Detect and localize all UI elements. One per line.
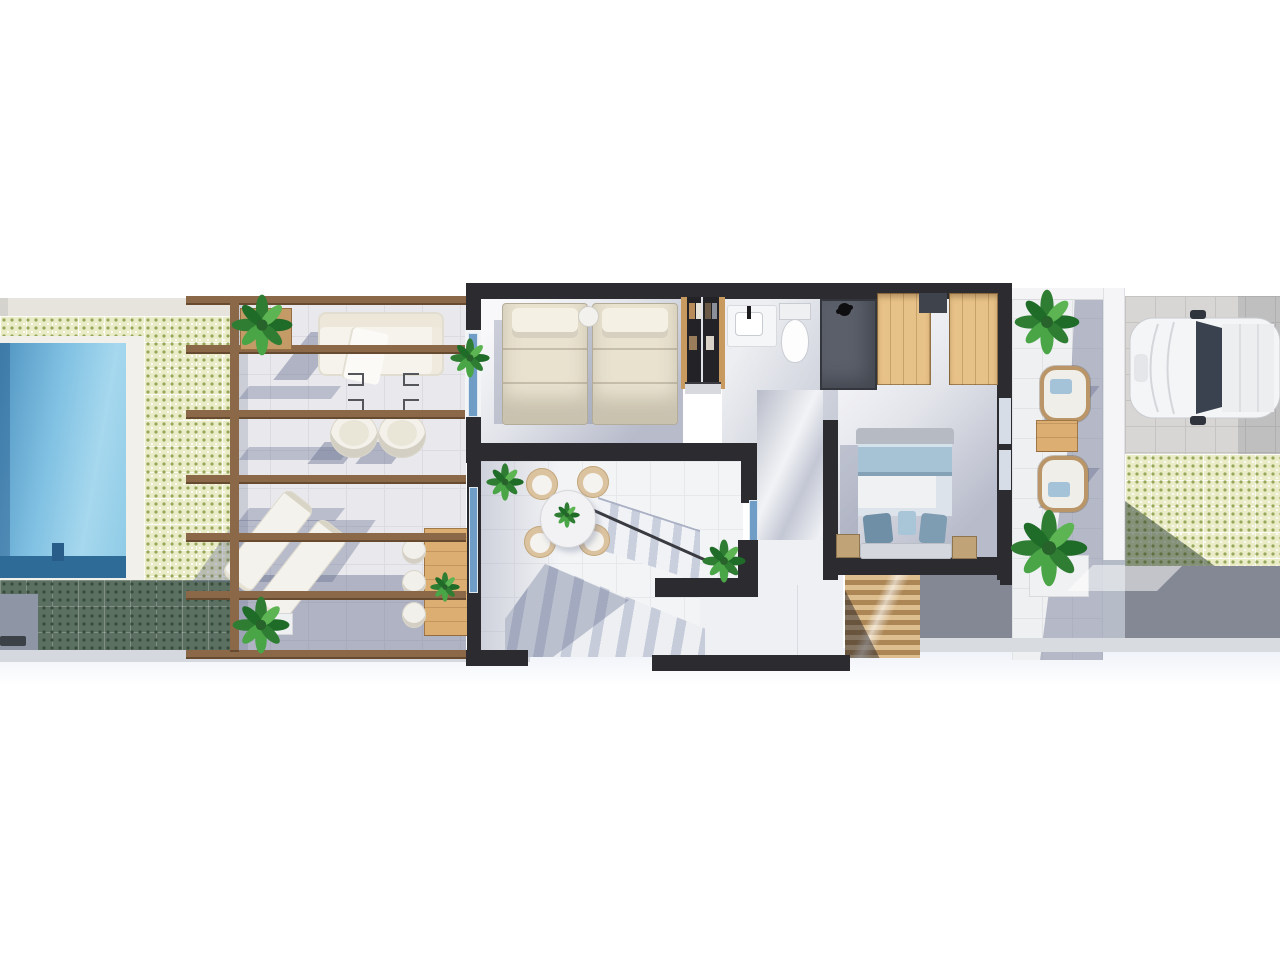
toilet-tank [779,303,811,320]
closet-clothes-1 [689,303,695,319]
pool-drain [52,543,64,561]
curb-right [920,638,1280,652]
beam-shadow-1 [239,386,341,399]
closet-clothes-5 [689,336,697,350]
wall-left-upper [466,283,481,335]
patio-lounge-chair-2 [1038,456,1088,512]
wall-left-mid [466,417,481,463]
window-master-right-2 [999,450,1011,490]
plant-patio-top [1014,289,1080,355]
closet-pole [701,297,703,389]
plant-outdoor-table [430,572,460,602]
master-pillow-1 [863,513,894,546]
closet-clothes-3 [705,303,711,319]
outdoor-chair-3 [402,602,426,628]
window-master-right-1 [999,398,1011,444]
pergola-beam-6 [186,591,466,600]
master-bed-headboard [856,428,954,444]
closet-clothes-6 [706,336,714,350]
pool-wall-left [0,343,10,558]
bench-stool-right [952,536,977,559]
plant-patio-bottom [1010,505,1088,591]
pergola-beam-5 [186,533,466,542]
wall-bottom-stair-hall [652,655,850,671]
duvet-fold [593,382,677,384]
pergola-beam-2 [186,345,466,354]
plant-stair-parapet [702,538,746,584]
foot-bench [860,543,952,559]
sink-tap [747,306,751,319]
bed-pillow [512,308,578,338]
pergola-beam-4 [186,475,466,484]
plant-bedroom-window [450,332,490,384]
wall-master-bottom [823,557,1012,575]
side-table-mark-2 [403,373,419,386]
master-bed-duvet-blue [858,444,952,476]
landing-floor [700,597,758,657]
wardrobe-2 [949,293,998,385]
bed-pillow [602,308,668,338]
pergola-beam-7 [186,650,466,659]
toilet-bowl [781,319,809,363]
sliding-door-terrace [469,487,478,593]
landing-joint-line [797,585,798,655]
side-table-mark-1 [348,373,364,386]
pergola-beam-1 [186,296,466,305]
master-bed-duvet-white [858,476,952,516]
patio-lounge-chair-1 [1040,366,1090,422]
parapet-wall [1103,288,1125,563]
pergola-beam-3 [186,410,466,419]
parked-car [1124,304,1280,430]
glass-door-stair-hall [749,500,758,542]
plant-dining-corner [486,462,524,502]
bench-stool-left [836,534,860,558]
closet-clothes-4 [712,303,717,319]
duvet-fold [503,348,587,350]
plant-terrace-top [230,294,294,356]
patio-side-table [1036,420,1078,452]
single-bed-2 [592,303,678,425]
wall-divider-horizontal [480,443,757,461]
garden-debris [0,636,26,646]
pool [0,343,126,558]
plant-dining-table [554,502,580,528]
master-pillow-2 [898,511,916,535]
closet-shoe-shelf [685,382,721,394]
master-pillow-3 [919,513,948,546]
wall-dining-right [741,443,757,503]
closet-frame-right [719,297,725,389]
floor-plan-scene [0,0,1280,960]
wall-console [919,293,947,313]
nightstand-round [578,306,599,327]
shower-head [838,303,851,316]
single-bed-1 [502,303,588,425]
duvet-fold [503,382,587,384]
plant-terrace-bottom [230,596,292,654]
duvet-fold [593,348,677,350]
wall-bottom-left-corner [466,650,528,666]
